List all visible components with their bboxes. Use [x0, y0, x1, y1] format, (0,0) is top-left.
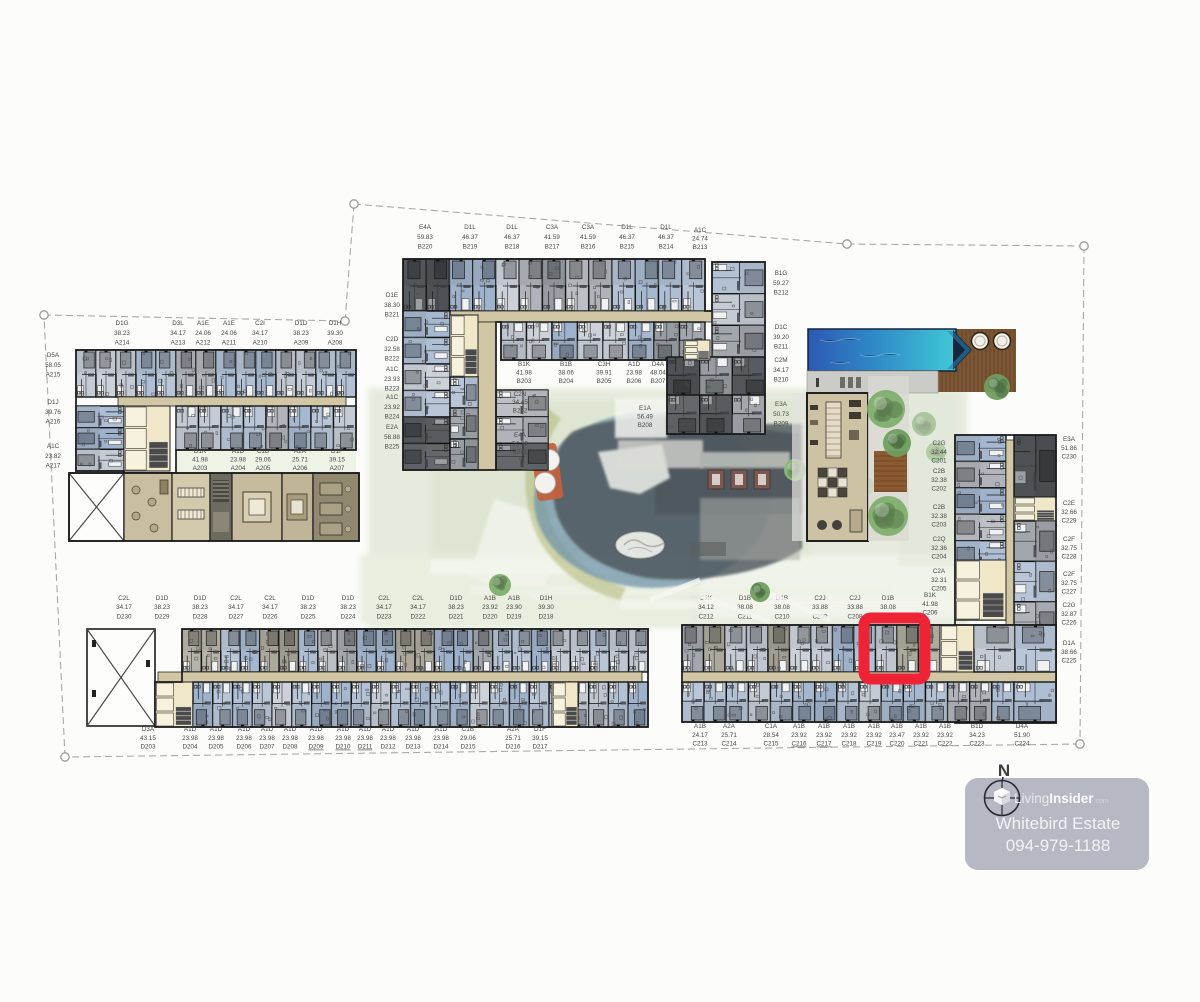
svg-text:B1K41.98C206: B1K41.98C206: [922, 592, 938, 617]
svg-text:E1A56.49B208: E1A56.49B208: [637, 405, 653, 429]
svg-text:C1A28.54C215: C1A28.54C215: [763, 723, 779, 748]
svg-text:A1B24.17C213: A1B24.17C213: [692, 723, 708, 748]
svg-text:D4A48.04B207: D4A48.04B207: [650, 361, 666, 385]
svg-text:A1D23.98D210: A1D23.98D210: [335, 726, 351, 751]
svg-text:A1B23.92C217: A1B23.92C217: [816, 723, 832, 748]
svg-text:Whitebird Estate: Whitebird Estate: [996, 814, 1121, 833]
svg-text:A1B23.92D220: A1B23.92D220: [482, 595, 498, 620]
svg-text:C1B29.06D215: C1B29.06D215: [460, 726, 476, 751]
svg-text:C3A41.59B217: C3A41.59B217: [544, 224, 560, 251]
svg-text:A2A25.71A206: A2A25.71A206: [292, 448, 308, 472]
svg-text:A1B23.92C221: A1B23.92C221: [913, 723, 929, 748]
svg-text:A1C24.74B213: A1C24.74B213: [692, 227, 708, 251]
svg-text:D1D38.23D228: D1D38.23D228: [192, 595, 208, 620]
svg-text:A1B23.92C222: A1B23.92C222: [937, 723, 953, 748]
svg-text:D1D38.23D224: D1D38.23D224: [340, 595, 356, 620]
svg-text:D1C39.20B211: D1C39.20B211: [773, 324, 789, 351]
svg-text:C2F32.75C227: C2F32.75C227: [1061, 571, 1077, 596]
svg-text:A1D23.98D208: A1D23.98D208: [282, 726, 298, 751]
svg-text:A1C23.93B223: A1C23.93B223: [384, 366, 400, 393]
svg-text:A1D23.98D213: A1D23.98D213: [405, 726, 421, 751]
svg-text:C2Q32.36C204: C2Q32.36C204: [931, 536, 947, 561]
svg-text:E4A54.32B201: E4A54.32B201: [512, 432, 528, 456]
svg-text:D1E38.30B221: D1E38.30B221: [384, 292, 400, 319]
svg-text:A1D23.98A204: A1D23.98A204: [230, 448, 246, 472]
svg-text:D5A58.05A215: D5A58.05A215: [45, 352, 61, 379]
svg-text:D1K41.98A203: D1K41.98A203: [192, 448, 208, 472]
svg-text:D1H39.30D218: D1H39.30D218: [538, 595, 554, 620]
svg-text:D1F39.15A207: D1F39.15A207: [329, 448, 345, 472]
svg-text:C2G32.44C201: C2G32.44C201: [931, 440, 947, 465]
svg-text:E4A59.83B220: E4A59.83B220: [417, 224, 433, 251]
svg-text:N: N: [998, 761, 1010, 780]
svg-text:D1H39.30A208: D1H39.30A208: [327, 320, 343, 347]
svg-text:C2E32.66C229: C2E32.66C229: [1061, 500, 1077, 525]
svg-text:A1C23.82A217: A1C23.82A217: [45, 443, 61, 470]
svg-text:E2A58.88B225: E2A58.88B225: [384, 424, 400, 451]
svg-text:E3A50.73B209: E3A50.73B209: [773, 401, 789, 428]
svg-text:A1D23.98D207: A1D23.98D207: [259, 726, 275, 751]
svg-text:B1G59.27B212: B1G59.27B212: [773, 270, 789, 297]
svg-text:D1F39.15D217: D1F39.15D217: [532, 726, 548, 751]
svg-text:A1B23.92C216: A1B23.92C216: [791, 723, 807, 748]
svg-text:B1B38.06B204: B1B38.06B204: [558, 361, 574, 385]
svg-text:D4A51.90C224: D4A51.90C224: [1014, 723, 1030, 748]
svg-text:D1A38.66C225: D1A38.66C225: [1061, 640, 1077, 665]
svg-text:D1D38.23A209: D1D38.23A209: [293, 320, 309, 347]
svg-text:B1D34.23C223: B1D34.23C223: [969, 723, 985, 748]
svg-text:C3H39.91B205: C3H39.91B205: [596, 361, 612, 385]
svg-text:C2B32.38C203: C2B32.38C203: [931, 504, 947, 529]
svg-text:C2D32.58B222: C2D32.58B222: [384, 336, 400, 363]
svg-text:C2G32.87C226: C2G32.87C226: [1061, 602, 1077, 627]
svg-text:C2A32.31C205: C2A32.31C205: [931, 568, 947, 593]
svg-text:A1B23.47C220: A1B23.47C220: [889, 723, 905, 748]
svg-text:A1D23.98D209: A1D23.98D209: [308, 726, 324, 751]
svg-text:A1E24.06A212: A1E24.06A212: [195, 320, 211, 347]
svg-text:D1D38.23D221: D1D38.23D221: [448, 595, 464, 620]
svg-text:C2N34.45B202: C2N34.45B202: [512, 391, 528, 414]
svg-text:D1D38.23D225: D1D38.23D225: [300, 595, 316, 620]
svg-text:A1D23.98D206: A1D23.98D206: [236, 726, 252, 751]
svg-text:D1G38.23A214: D1G38.23A214: [114, 320, 130, 347]
svg-text:A2A25.71C214: A2A25.71C214: [721, 723, 737, 748]
svg-text:C1B29.06A205: C1B29.06A205: [255, 448, 271, 472]
svg-text:A1D23.98D204: A1D23.98D204: [182, 726, 198, 751]
svg-text:A1C23.92B224: A1C23.92B224: [384, 394, 400, 421]
svg-text:C2M34.17B210: C2M34.17B210: [773, 357, 789, 384]
svg-text:B1K41.98B203: B1K41.98B203: [516, 361, 532, 385]
svg-text:A1D23.98D214: A1D23.98D214: [433, 726, 449, 751]
svg-text:A1B23.92C219: A1B23.92C219: [866, 723, 882, 748]
svg-text:A2A25.71D216: A2A25.71D216: [505, 726, 521, 751]
svg-text:A1D23.98D211: A1D23.98D211: [357, 726, 373, 751]
svg-text:E3A51.86C230: E3A51.86C230: [1061, 436, 1077, 461]
svg-text:A1B23.90D219: A1B23.90D219: [506, 595, 522, 620]
svg-text:A1D23.98D212: A1D23.98D212: [380, 726, 396, 751]
svg-text:C2F32.75C228: C2F32.75C228: [1061, 536, 1077, 561]
svg-text:D3A43.15D203: D3A43.15D203: [140, 726, 156, 751]
svg-text:A1B23.92C218: A1B23.92C218: [841, 723, 857, 748]
svg-text:A1D23.98B206: A1D23.98B206: [626, 361, 642, 385]
svg-text:A1E24.06A211: A1E24.06A211: [221, 320, 237, 347]
svg-text:D1D38.23D229: D1D38.23D229: [154, 595, 170, 620]
svg-text:C3A41.59B216: C3A41.59B216: [580, 224, 596, 251]
svg-text:A1D23.98D205: A1D23.98D205: [208, 726, 224, 751]
svg-text:094-979-1188: 094-979-1188: [1006, 836, 1111, 855]
svg-text:C2B32.38C202: C2B32.38C202: [931, 468, 947, 493]
